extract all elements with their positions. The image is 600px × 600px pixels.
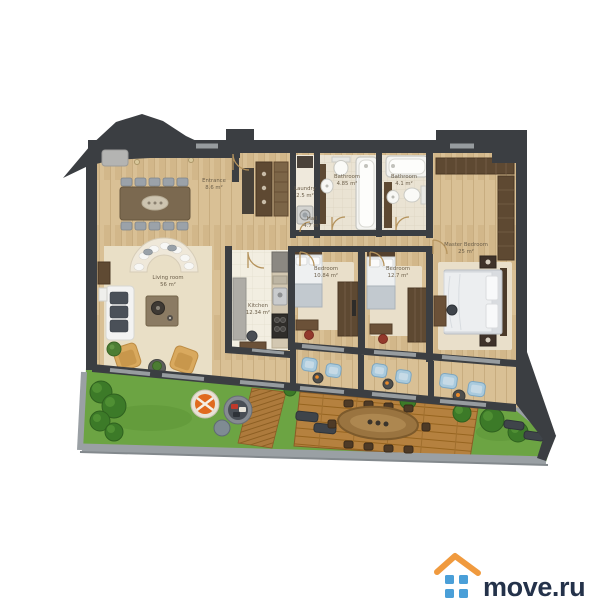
wall-left [86, 152, 97, 370]
kitchen-tall-unit [233, 278, 246, 340]
bean-bag-seat-striped [191, 390, 219, 418]
bedroom-2-label: Bedroom [386, 266, 410, 272]
bathroom-2-label: Bathroom [391, 174, 417, 180]
ceiling-light [189, 158, 194, 163]
living-room-label: Living room [152, 275, 183, 281]
kitchen-appliance [273, 276, 287, 284]
vanity-2 [384, 182, 392, 228]
garden-side-table [214, 420, 230, 436]
wall-bedroom2-master [426, 252, 433, 362]
wall-bath2-master [426, 153, 433, 238]
wall-bedroom1-bedroom2 [358, 252, 365, 354]
balcony-divider [290, 348, 296, 386]
logo-text: move.ru [483, 572, 585, 600]
wall-top-right [436, 130, 527, 144]
toilet-tank-2 [421, 186, 426, 204]
living-cabinet [98, 262, 110, 284]
floor-plan-image: Living room 56 m² Entrance 8.6 m² Hall 4… [0, 0, 600, 600]
bed-headboard [367, 252, 395, 257]
kitchen-chair [247, 331, 257, 341]
toilet-2 [404, 188, 420, 202]
white-sofa [106, 286, 134, 340]
wall-top-step [226, 129, 254, 142]
coffee-table [146, 296, 178, 326]
entrance-shelves [274, 162, 288, 216]
bedroom-1-label: Bedroom [314, 266, 338, 272]
bathroom-1-area: 4.85 m² [337, 180, 358, 187]
entrance-area: 8.6 m² [205, 184, 222, 191]
laundry-label: Laundry [294, 186, 316, 192]
laundry-shelf [297, 156, 313, 168]
master-bedroom-area: 25 m² [458, 248, 474, 255]
logo-window-icon [445, 575, 468, 598]
wall-living-kitchen [225, 246, 232, 350]
master-desk-chair [447, 305, 457, 315]
stove [272, 314, 288, 338]
bathroom-2-area: 4.1 m² [395, 180, 412, 187]
dining-set [120, 178, 190, 230]
terrace-curb-left [80, 372, 84, 450]
wall-hall-north [296, 230, 433, 236]
wardrobe-2 [408, 288, 428, 342]
desk-chair-1 [305, 331, 314, 340]
exterior-unit [102, 150, 128, 166]
desk-1 [296, 320, 318, 330]
hall-area: 4.7 m² [303, 222, 320, 229]
planter-box [99, 288, 107, 301]
desk-2 [370, 324, 392, 334]
desk-chair-2 [379, 335, 388, 344]
kitchen-label: Kitchen [248, 303, 268, 309]
moveru-logo: move.ru [437, 556, 585, 600]
bedroom-2-area: 12.7 m² [388, 272, 409, 279]
master-bedroom-label: Master Bedroom [444, 242, 488, 248]
potted-plant [107, 342, 121, 356]
bed-blanket [367, 286, 395, 309]
entrance-label: Entrance [202, 178, 226, 184]
logo-house-roof-icon [437, 556, 478, 573]
bed-blanket [294, 284, 322, 307]
living-room-area: 56 m² [160, 281, 176, 288]
bathroom-1-label: Bathroom [334, 174, 360, 180]
wall-hall-south [288, 246, 433, 252]
hall-label: Hall [307, 216, 317, 222]
balcony-divider [428, 360, 434, 399]
bean-bag-seat-dark [224, 396, 252, 424]
entrance-mat [242, 168, 254, 214]
floor-plan-page: Living room 56 m² Entrance 8.6 m² Hall 4… [0, 0, 600, 600]
wall-right [516, 153, 527, 355]
ceiling-light [135, 160, 140, 165]
wall-kitchen-bedroom1 [288, 246, 295, 350]
wall-bath-divider [376, 153, 382, 237]
bedroom-1-furniture [294, 250, 358, 340]
fridge [272, 252, 288, 272]
balcony-divider [358, 354, 364, 392]
kitchen-area: 12.34 m² [246, 309, 270, 316]
tv-1 [352, 300, 356, 316]
laundry-area: 2.5 m² [296, 192, 313, 199]
bedroom-1-area: 10.84 m² [314, 272, 338, 279]
master-desk [434, 296, 446, 326]
wall-laundry-left [290, 152, 296, 238]
